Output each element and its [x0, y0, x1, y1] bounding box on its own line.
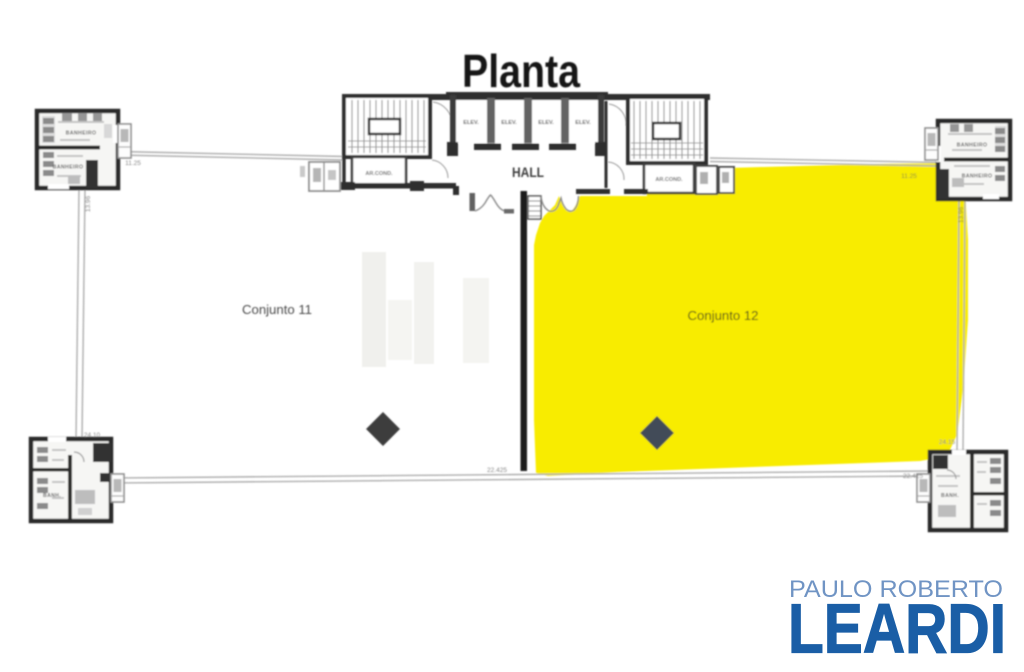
svg-text:BANH.: BANH.	[43, 493, 61, 499]
svg-text:AR.COND.: AR.COND.	[655, 177, 683, 183]
svg-text:11.25: 11.25	[901, 173, 917, 180]
svg-text:BANH.: BANH.	[941, 493, 959, 499]
svg-text:22.425: 22.425	[487, 467, 507, 474]
svg-text:ELEV.: ELEV.	[463, 120, 479, 126]
svg-text:ELEV.: ELEV.	[538, 120, 554, 126]
svg-text:13.96: 13.96	[958, 206, 965, 223]
svg-text:BANHEIRO: BANHEIRO	[962, 174, 993, 180]
svg-text:BANHEIRO: BANHEIRO	[66, 131, 97, 137]
svg-text:AR.COND.: AR.COND.	[365, 171, 393, 177]
svg-text:13.96: 13.96	[85, 195, 92, 212]
svg-text:24.15: 24.15	[939, 439, 956, 446]
svg-text:ELEV.: ELEV.	[501, 120, 517, 126]
svg-text:ELEV.: ELEV.	[575, 120, 591, 126]
svg-text:Planta: Planta	[462, 45, 580, 97]
svg-text:11.25: 11.25	[125, 160, 141, 167]
svg-text:LEARDI: LEARDI	[788, 590, 1006, 668]
svg-text:BANHEIRO: BANHEIRO	[53, 165, 84, 171]
svg-text:24.10: 24.10	[84, 432, 101, 439]
svg-text:22.425: 22.425	[903, 473, 923, 480]
svg-text:Conjunto 11: Conjunto 11	[242, 303, 312, 317]
svg-text:Conjunto 12: Conjunto 12	[688, 308, 759, 323]
svg-text:HALL: HALL	[512, 164, 544, 180]
svg-text:BANHEIRO: BANHEIRO	[957, 143, 988, 149]
